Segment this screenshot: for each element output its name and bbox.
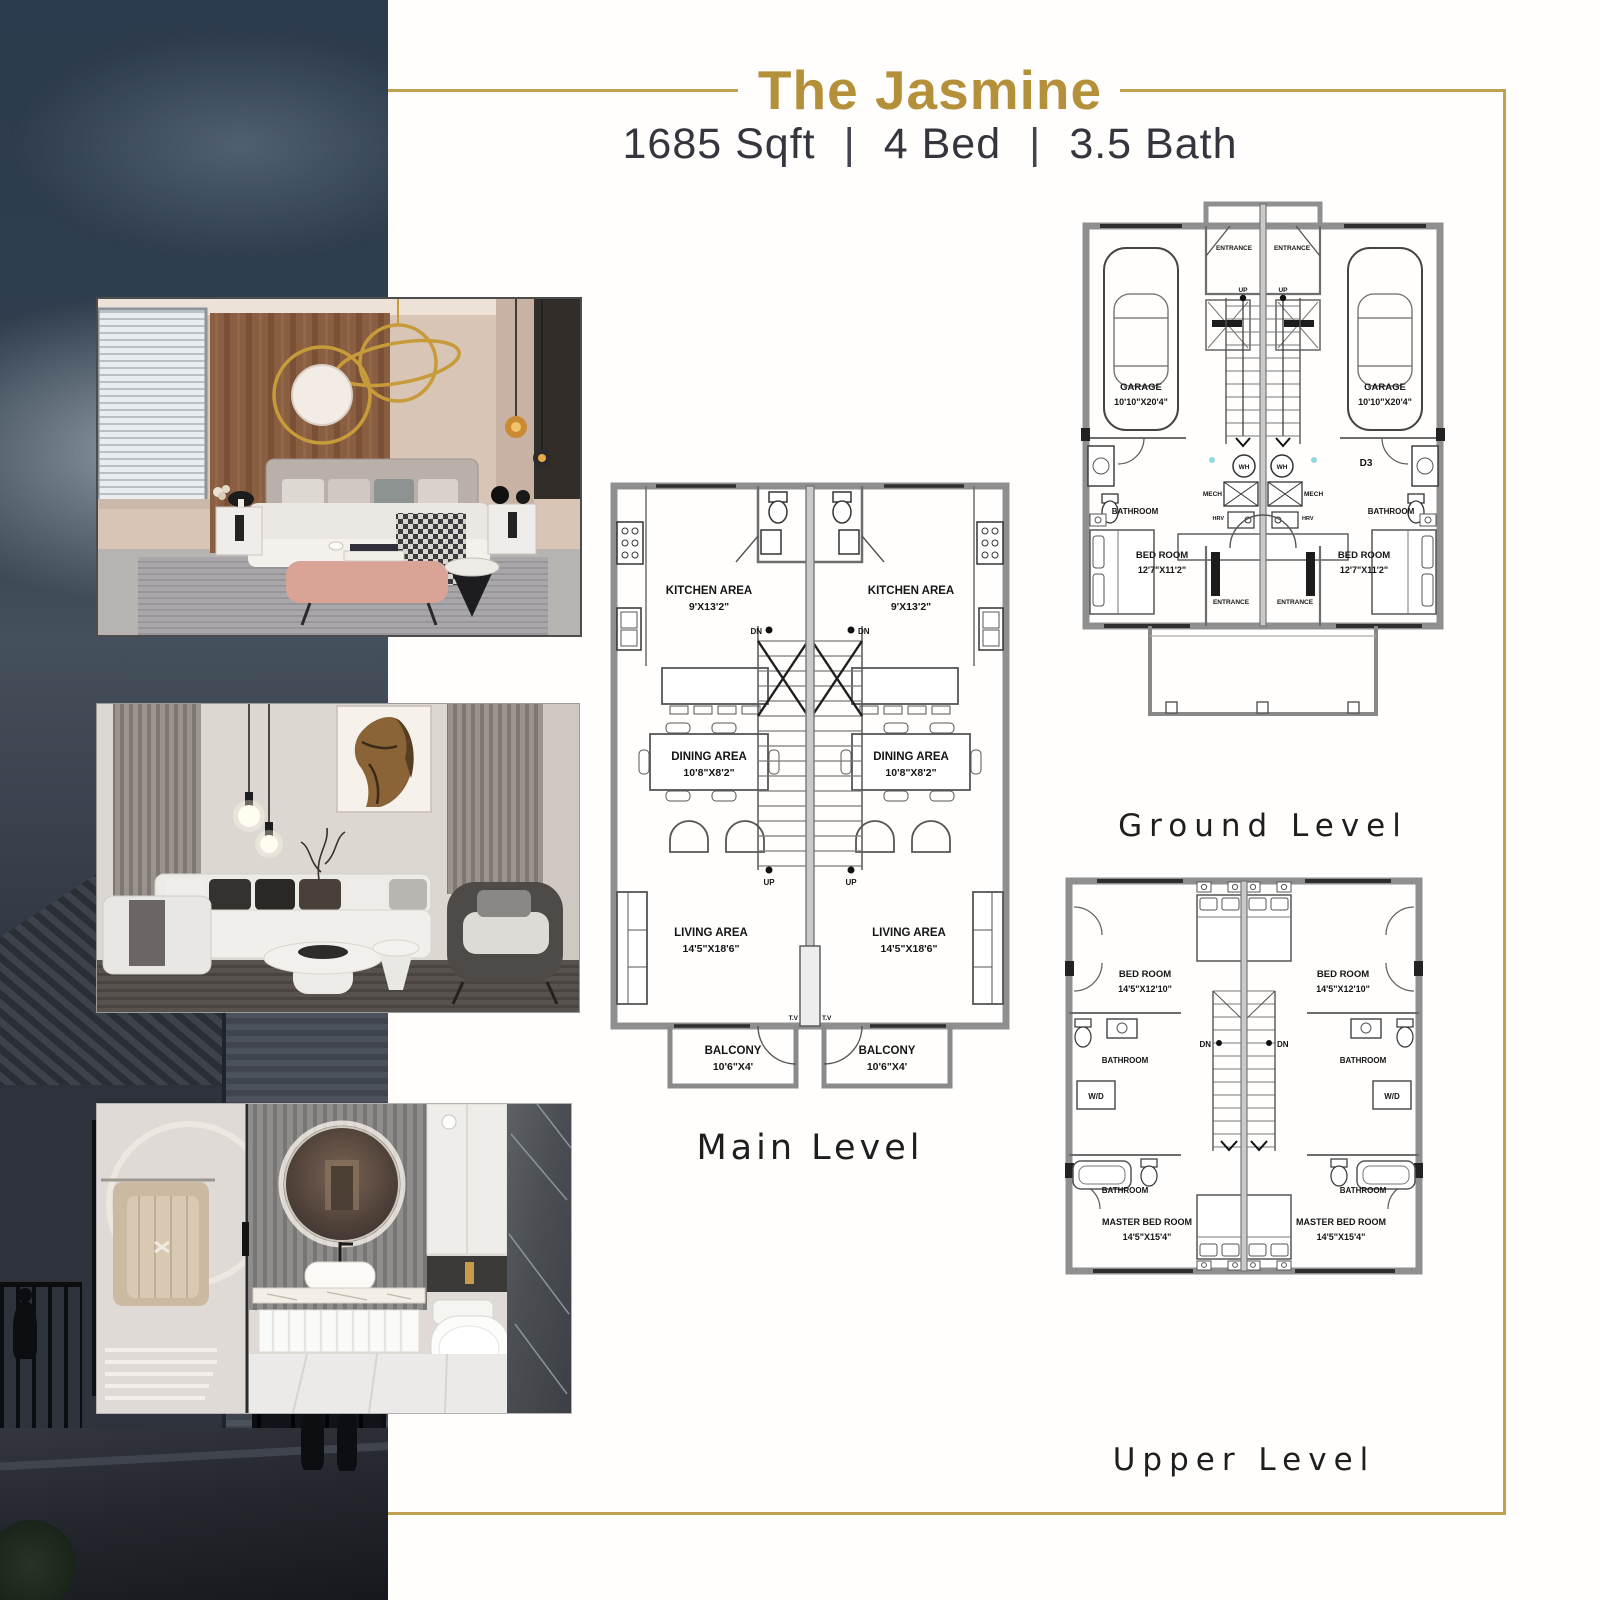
bathroom-label-left: BATHROOM <box>1112 507 1159 516</box>
hrv-label-right: HRV <box>1302 516 1314 522</box>
subtitle-divider: | <box>844 120 856 169</box>
wall-panel <box>496 299 534 519</box>
window-with-blinds <box>98 309 216 509</box>
bathroom-photo <box>96 1103 572 1414</box>
ground-level-left-unit <box>1081 204 1263 626</box>
flyer-page: The Jasmine 1685 Sqft|4 Bed|3.5 Bath <box>0 0 1600 1600</box>
wd-label-right: W/D <box>1384 1092 1400 1101</box>
entrance-top-left: ENTRANCE <box>1216 245 1253 252</box>
frame-bottom-line <box>388 1512 1506 1515</box>
entrance-bottom-right: ENTRANCE <box>1277 599 1314 606</box>
bedroom-dims-right: 14'5"X12'10" <box>1316 984 1370 994</box>
kitchen-fixtures <box>617 486 768 714</box>
horse-artwork <box>337 706 431 812</box>
entrance-bottom-left: ENTRANCE <box>1213 599 1250 606</box>
main-level-caption: Main Level <box>608 1128 1012 1168</box>
mech-label-right: MECH <box>1304 491 1323 498</box>
dining-dims-right: 10'8"X8'2" <box>885 767 936 779</box>
dn-marker-left: DN <box>750 627 762 636</box>
bedroom-label-right: BED ROOM <box>1338 550 1390 561</box>
dining-dims-left: 10'8"X8'2" <box>683 767 734 779</box>
bedroom-bed <box>1197 882 1242 961</box>
title-left-dash <box>388 89 738 92</box>
subtitle-bed: 4 Bed <box>884 120 1001 168</box>
bathroom-scene <box>97 1104 571 1413</box>
upper-level-left-unit <box>1065 881 1244 1271</box>
person-silhouette <box>13 1301 37 1359</box>
hrv-label-left: HRV <box>1212 516 1224 522</box>
dining-label-right: DINING AREA <box>873 751 949 763</box>
wardrobe <box>534 299 580 499</box>
marble-wall <box>507 1104 571 1413</box>
stairs <box>1226 295 1261 446</box>
wd-label-left: W/D <box>1088 1092 1104 1101</box>
bathroom-two-label-left: BATHROOM <box>1102 1186 1149 1195</box>
up-marker-left: UP <box>763 878 775 887</box>
powder-room <box>736 486 806 562</box>
bathroom-label-right: BATHROOM <box>1368 507 1415 516</box>
d3-label: D3 <box>1360 458 1373 469</box>
ground-level-floor-plan: GARAGE 10'10"X20'4" GARAGE 10'10"X20'4" … <box>1078 198 1448 743</box>
living-dims-left: 14'5"X18'6" <box>683 943 740 955</box>
party-wall <box>1260 204 1266 626</box>
bathroom-one-label-left: BATHROOM <box>1102 1056 1149 1065</box>
up-marker-left: UP <box>1238 287 1248 294</box>
dn-marker-left: DN <box>1199 1040 1211 1049</box>
mechanical-area <box>1178 455 1263 560</box>
kitchen-label-left: KITCHEN AREA <box>666 585 752 597</box>
person-silhouette <box>18 1288 32 1302</box>
bedroom-dims-right: 12'7"X11'2" <box>1340 565 1388 575</box>
bedroom-label-right: BED ROOM <box>1317 969 1369 980</box>
page-subtitle: 1685 Sqft|4 Bed|3.5 Bath <box>540 120 1320 169</box>
slat-panel-left <box>113 704 201 900</box>
tv-unit <box>800 946 820 1026</box>
kitchen-dims-left: 9'X13'2" <box>689 601 729 613</box>
master-label-left: MASTER BED ROOM <box>1102 1217 1192 1227</box>
balcony-dims-left: 10'6"X4' <box>713 1061 753 1073</box>
garage-label-left: GARAGE <box>1120 382 1162 393</box>
wh-marker-left: WH <box>1239 464 1250 471</box>
balcony-dims-right: 10'6"X4' <box>867 1061 907 1073</box>
tv-marker-left: T.V <box>789 1015 799 1022</box>
living-dims-right: 14'5"X18'6" <box>881 943 938 955</box>
mech-label-left: MECH <box>1203 491 1222 498</box>
living-room-scene <box>97 704 579 1012</box>
subtitle-divider: | <box>1029 120 1041 169</box>
upper-level-caption: Upper Level <box>1063 1442 1425 1478</box>
bedroom-photo <box>96 297 582 637</box>
right-cabinets-niche <box>427 1104 511 1292</box>
dn-marker-right: DN <box>1277 1040 1289 1049</box>
garage-dims-right: 10'10"X20'4" <box>1358 397 1412 407</box>
master-bed <box>1197 1195 1242 1270</box>
up-marker-right: UP <box>845 878 857 887</box>
garage-label-right: GARAGE <box>1364 382 1406 393</box>
entrance-top-right: ENTRANCE <box>1274 245 1311 252</box>
up-marker-right: UP <box>1278 287 1288 294</box>
living-label-left: LIVING AREA <box>674 927 748 939</box>
dining-label-left: DINING AREA <box>671 751 747 763</box>
balcony-label-right: BALCONY <box>859 1045 916 1057</box>
master-dims-right: 14'5"X15'4" <box>1317 1232 1366 1242</box>
slat-panel-right <box>447 704 543 894</box>
sofa <box>617 892 647 1004</box>
main-level-left-unit <box>614 486 810 1086</box>
arch-chairs <box>670 821 764 852</box>
tv-marker-right: T.V <box>822 1015 832 1022</box>
porch <box>1150 626 1376 714</box>
ground-level-drawing: GARAGE 10'10"X20'4" GARAGE 10'10"X20'4" … <box>1078 198 1448 743</box>
tile-floor <box>249 1354 507 1413</box>
upper-level-drawing: BED ROOM 14'5"X12'10" BED ROOM 14'5"X12'… <box>1063 873 1425 1406</box>
pedestrian-silhouette <box>337 1405 357 1471</box>
master-label-right: MASTER BED ROOM <box>1296 1217 1386 1227</box>
bathroom-one <box>1069 1013 1181 1047</box>
bathroom-one-label-right: BATHROOM <box>1340 1056 1387 1065</box>
subtitle-sqft: 1685 Sqft <box>623 120 816 168</box>
party-wall <box>1241 881 1247 1271</box>
living-label-right: LIVING AREA <box>872 927 946 939</box>
balcony-label-left: BALCONY <box>705 1045 762 1057</box>
cloud <box>10 30 388 260</box>
frame-right-line <box>1503 89 1506 1515</box>
bedroom-label-left: BED ROOM <box>1119 969 1171 980</box>
main-level-floor-plan: KITCHEN AREA 9'X13'2" KITCHEN AREA 9'X13… <box>608 478 1012 1110</box>
title-right-dash <box>1120 89 1506 92</box>
kitchen-dims-right: 9'X13'2" <box>891 601 931 613</box>
party-wall <box>806 486 814 1026</box>
subtitle-bath: 3.5 Bath <box>1069 120 1237 168</box>
bathroom-two-label-right: BATHROOM <box>1340 1186 1387 1195</box>
main-level-drawing: KITCHEN AREA 9'X13'2" KITCHEN AREA 9'X13… <box>608 478 1012 1110</box>
bedroom-label-left: BED ROOM <box>1136 550 1188 561</box>
kitchen-label-right: KITCHEN AREA <box>868 585 954 597</box>
round-mirror <box>281 1123 403 1245</box>
bathroom-two <box>1069 1155 1181 1189</box>
page-title: The Jasmine <box>740 58 1120 122</box>
master-dims-left: 14'5"X15'4" <box>1123 1232 1172 1242</box>
stairs <box>1213 991 1244 1151</box>
upper-level-floor-plan: BED ROOM 14'5"X12'10" BED ROOM 14'5"X12'… <box>1063 873 1425 1406</box>
ground-level-caption: Ground Level <box>1078 808 1448 844</box>
bedroom-dims-left: 12'7"X11'2" <box>1138 565 1186 575</box>
blanket <box>129 900 165 966</box>
bedroom-dims-left: 14'5"X12'10" <box>1118 984 1172 994</box>
garage-dims-left: 10'10"X20'4" <box>1114 397 1168 407</box>
living-room-photo <box>96 703 580 1013</box>
bedroom-scene <box>98 299 580 635</box>
wh-marker-right: WH <box>1277 464 1288 471</box>
dn-marker-right: DN <box>858 627 870 636</box>
